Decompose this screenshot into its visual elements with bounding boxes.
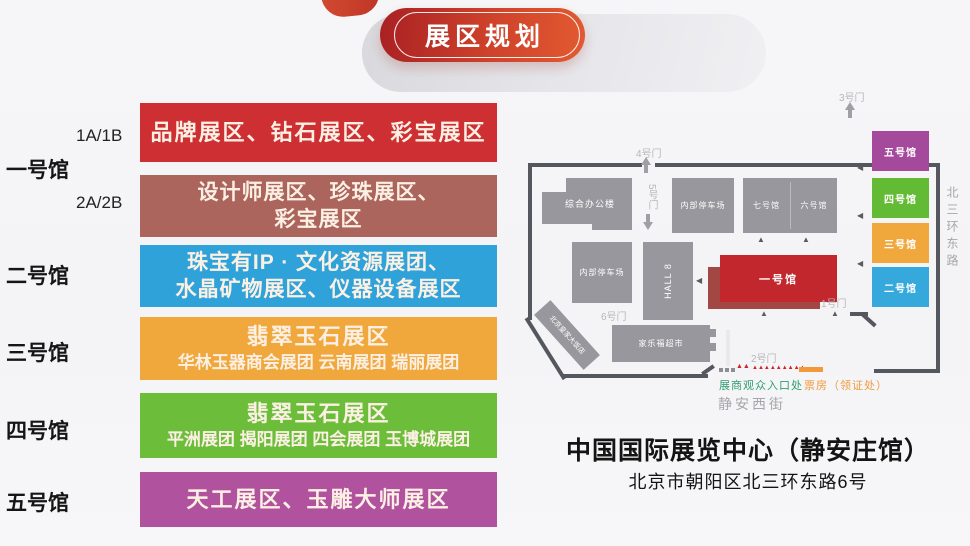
map-hall6-label: 六号馆 — [791, 200, 837, 211]
supermarket-building: 家乐福超市 — [612, 325, 710, 362]
hotel-building: 北京皇家大饭店 — [534, 300, 600, 370]
hall4-zone-sub: 平洲展团 揭阳展团 四会展团 玉博城展团 — [167, 428, 470, 452]
map-hall1-block: 一号馆 — [720, 255, 837, 302]
hall4-zone-title: 翡翠玉石展区 — [246, 400, 390, 428]
hotel-label: 北京皇家大饭店 — [547, 313, 587, 356]
hall3-zone-block: 翡翠玉石展区 华林玉器商会展团 云南展团 瑞丽展团 — [140, 317, 497, 380]
entry-arrow-icon: ◀ — [857, 164, 863, 172]
parking-lot-left: 内部停车场 — [572, 242, 632, 303]
venue-address: 北京市朝阳区北三环东路6号 — [528, 468, 968, 494]
map-hall4-label: 四号馆 — [884, 191, 917, 206]
gate6-label: 6号门 — [601, 308, 627, 323]
map-hall3-block: 三号馆 — [872, 223, 929, 263]
hall5-zone-text: 天工展区、玉雕大师展区 — [186, 486, 450, 513]
map-border-bottom-left — [562, 374, 708, 378]
parking-lot-top-label: 内部停车场 — [681, 200, 726, 211]
ticket-office-label: 票房（领证处） — [804, 377, 888, 393]
hall2-zone-block: 珠宝有IP · 文化资源展团、 水晶矿物展区、仪器设备展区 — [140, 245, 497, 307]
entry-arrow-icon: ◀ — [857, 212, 863, 220]
gate5-label: 5号门 — [644, 184, 659, 210]
hall3-zone-sub: 华林玉器商会展团 云南展团 瑞丽展团 — [178, 351, 459, 375]
map-border-hook — [701, 364, 715, 375]
map-border-right — [936, 163, 940, 373]
exhibition-plan-poster: 展区规划 1A/1B 一号馆 2A/2B 二号馆 三号馆 四号馆 五号馆 品牌展… — [0, 0, 970, 546]
hall1-zone-text-b1: 设计师展区、珍珠展区、 — [198, 179, 440, 206]
hall4-zone-block: 翡翠玉石展区 平洲展团 揭阳展团 四会展团 玉博城展团 — [140, 393, 497, 458]
hall3-zone-title: 翡翠玉石展区 — [246, 323, 390, 351]
hall8-label: HALL 8 — [663, 263, 673, 299]
map-hall2-block: 二号馆 — [872, 267, 929, 307]
street-east-label: 北三环东路 — [944, 186, 961, 271]
hall5-name: 五号馆 — [6, 487, 78, 517]
entry-arrow-icon: ◀ — [696, 277, 702, 285]
street-south-label: 静安西街 — [718, 394, 786, 414]
map-hall3-label: 三号馆 — [884, 236, 917, 251]
hall7-hall6-building: 七号馆 六号馆 — [743, 178, 837, 233]
hall1-sub-label-top: 1A/1B — [76, 126, 128, 146]
map-border-elbow-b — [861, 313, 876, 327]
hall5-zone-block: 天工展区、玉雕大师展区 — [140, 472, 497, 527]
hall1-zone-block-b: 设计师展区、珍珠展区、 彩宝展区 — [140, 175, 497, 237]
ticket-office-marker — [799, 367, 823, 372]
map-border-bottom-right — [874, 369, 938, 373]
hall1-zone-text-b2: 彩宝展区 — [275, 206, 363, 233]
map-hall5-block: 五号馆 — [872, 131, 929, 171]
entrance-label: 展商观众入口处 — [719, 377, 803, 393]
hall8-building: HALL 8 — [643, 242, 693, 320]
map-hall4-block: 四号馆 — [872, 178, 929, 218]
hall4-name: 四号馆 — [6, 415, 78, 445]
hall2-zone-text-2: 水晶矿物展区、仪器设备展区 — [176, 276, 462, 303]
ribbon-corner-decoration — [321, 0, 382, 19]
hall1-zone-block-a: 品牌展区、钻石展区、彩宝展区 — [140, 103, 497, 162]
banner: 展区规划 — [380, 8, 585, 62]
gate3-arrow-icon — [845, 102, 855, 118]
hall1-name: 一号馆 — [6, 154, 78, 184]
parking-lot-top: 内部停车场 — [672, 178, 734, 233]
entry-arrow-icon: ▲ — [831, 310, 839, 318]
gate4-arrow-icon — [641, 157, 651, 173]
map-border-left — [528, 163, 532, 320]
entrance-arrow-markers: ▲▲ — [736, 364, 750, 370]
entry-arrow-icon: ▲ — [760, 310, 768, 318]
supermarket-tab-2 — [710, 343, 716, 351]
page-title: 展区规划 — [420, 17, 545, 53]
map-hall1-label: 一号馆 — [759, 271, 798, 287]
hall3-name: 三号馆 — [6, 337, 78, 367]
supermarket-tab-1 — [710, 329, 716, 337]
hall1-zone-text-a: 品牌展区、钻石展区、彩宝展区 — [150, 119, 486, 146]
entry-arrow-icon: ▲ — [802, 236, 810, 244]
gate2-label: 2号门 — [751, 350, 777, 365]
hall2-name: 二号馆 — [6, 260, 78, 290]
gate2-path — [726, 330, 730, 366]
parking-lot-left-label: 内部停车场 — [580, 267, 625, 278]
entrance-dash-markers — [719, 368, 735, 372]
gate5-arrow-icon — [643, 214, 653, 230]
entry-arrow-icon: ◀ — [857, 260, 863, 268]
entrance-arrow-markers-row: ▲▲▲▲▲▲▲▲▲ — [752, 365, 805, 371]
hall2-zone-text-1: 珠宝有IP · 文化资源展团、 — [187, 249, 450, 276]
supermarket-label: 家乐福超市 — [639, 338, 684, 349]
entry-arrow-icon: ▲ — [757, 236, 765, 244]
office-building-tab — [592, 224, 632, 230]
map-border-top-left — [528, 163, 642, 167]
gate1-label: 1号门 — [821, 295, 847, 310]
map-hall5-label: 五号馆 — [884, 144, 917, 159]
office-building-label: 综合办公楼 — [545, 197, 635, 210]
hall1-sub-label-bottom: 2A/2B — [76, 193, 128, 213]
venue-name: 中国国际展览中心（静安庄馆） — [528, 431, 968, 467]
map-hall2-label: 二号馆 — [884, 280, 917, 295]
map-hall7-label: 七号馆 — [743, 182, 791, 229]
